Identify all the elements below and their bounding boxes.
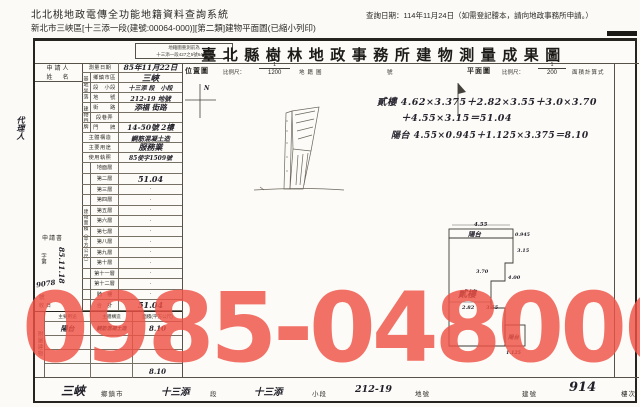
info-row-lot-number: 地 號 212-19 地號 bbox=[82, 93, 182, 103]
dim-4-55: 4.55 bbox=[474, 222, 488, 228]
floor-row: 第九層· bbox=[82, 248, 182, 259]
info-row-structure: 主體構造 鋼筋混凝土造 bbox=[82, 133, 182, 143]
info-row-section: 段 小段 十三添 段 小段 bbox=[82, 83, 182, 93]
scan-artifact-bar bbox=[607, 31, 637, 36]
scanned-survey-page: 北北桃地政電傳全功能地籍資料查詢系統 查詢日期：114年11月24日（如需登記謄… bbox=[0, 0, 640, 407]
floor-label: 第七層 bbox=[91, 227, 119, 237]
calc-line-floor: 貳樓 4.62×3.375＋2.82×3.55＋3.0×3.70 bbox=[377, 94, 597, 108]
floor-row: 第七層· bbox=[82, 227, 182, 238]
floor-label: 第四層 bbox=[91, 195, 119, 205]
application-zidi-label: 字第 bbox=[39, 253, 47, 264]
floor-row: 第二層51.04 bbox=[82, 174, 182, 185]
floor-row: 第十層· bbox=[82, 258, 182, 269]
location-scale-fraction: 1 1200 bbox=[259, 63, 290, 77]
footer-section-label: 段 bbox=[210, 388, 218, 398]
calc-line-floor2: ＋4.55×3.15＝51.04 bbox=[401, 110, 512, 124]
margin-annotation: 代理人 bbox=[16, 116, 27, 140]
dim-3-15: 3.15 bbox=[517, 248, 530, 254]
floor-row: 第三層· bbox=[82, 185, 182, 196]
query-date-note: 查詢日期：114年11月24日（如需登記謄本，請向地政事務所申請。） bbox=[366, 10, 593, 21]
plan-title: 平面圖 bbox=[467, 66, 491, 76]
location-map-title: 位置圖 bbox=[185, 66, 209, 76]
cadastre-number-label: 號 bbox=[387, 68, 393, 76]
floor-value bbox=[119, 163, 182, 173]
info-row-door-number: 門 牌 14-50號 2樓 bbox=[82, 123, 182, 133]
floor-value: · bbox=[119, 206, 182, 216]
scale-denominator: 1200 bbox=[259, 68, 290, 77]
info-row-township: 鄉鎮市區 三峽 bbox=[82, 73, 182, 83]
dim-0-945: 0.945 bbox=[515, 232, 531, 238]
field-label: 街 路 bbox=[91, 103, 119, 112]
info-row-license: 使用執照 85使字1509號 bbox=[82, 153, 182, 163]
footer-floor-label: 樓次 bbox=[621, 388, 636, 398]
application-book-label: 申請書 bbox=[42, 233, 63, 242]
footer-subsection-value: 十三添 bbox=[254, 384, 283, 398]
floor-label: 第六層 bbox=[91, 216, 119, 226]
calc-line-balcony: 陽台 4.55×0.945＋1.125×3.375＝8.10 bbox=[391, 128, 589, 141]
floor-value: · bbox=[119, 227, 182, 237]
field-label: 地 號 bbox=[91, 93, 119, 102]
field-label: 使用執照 bbox=[82, 153, 119, 162]
floor-value: · bbox=[119, 185, 182, 195]
floor-row: 地面層 bbox=[82, 163, 182, 174]
info-row-usage: 主要用途 服務業 bbox=[82, 143, 182, 153]
plan-scale-fraction: 1 200 bbox=[538, 63, 566, 77]
floor-value: · bbox=[119, 258, 182, 268]
scale-denominator: 200 bbox=[538, 68, 566, 77]
applicant-label-line2: 姓 名 bbox=[46, 72, 70, 81]
floor-label: 第五層 bbox=[91, 206, 119, 216]
location-scale-label: 比例尺： bbox=[223, 68, 245, 76]
applicant-label: 申請人 姓 名 bbox=[35, 63, 82, 81]
field-label: 段 小段 bbox=[91, 83, 119, 92]
floor-label: 第十層 bbox=[91, 258, 119, 268]
field-label: 門 牌 bbox=[91, 123, 119, 132]
floor-value: · bbox=[119, 248, 182, 258]
applicant-label-line1: 申請人 bbox=[46, 63, 70, 72]
footer-lot-label: 地號 bbox=[415, 388, 430, 398]
floor-label: 第九層 bbox=[91, 248, 119, 258]
field-value: 14-50號 2樓 bbox=[119, 123, 182, 132]
north-cross-icon: N bbox=[183, 81, 223, 121]
floor-label: 第八層 bbox=[91, 237, 119, 247]
field-value: 添福 街路 bbox=[119, 103, 182, 112]
footer-subsection-label: 小段 bbox=[312, 388, 327, 398]
field-value: 十三添 段 小段 bbox=[119, 83, 182, 92]
area-calculation-label: 面積計算式 bbox=[572, 68, 605, 76]
info-row-street: 街 路 添福 街路 bbox=[82, 103, 182, 113]
footer-section-value: 十三添 bbox=[161, 384, 190, 398]
north-letter: N bbox=[203, 85, 210, 92]
footer-lot-value: 212-19 bbox=[355, 384, 392, 395]
applicant-cell-divider bbox=[35, 81, 82, 82]
field-value: 服務業 bbox=[119, 143, 182, 152]
document-subtitle: 新北市三峽區[十三添一段(建號:00064-000)][第二類]建物平面圖(已縮… bbox=[31, 22, 316, 34]
info-row-survey-date: 測量日期 85年11月22日 bbox=[82, 63, 182, 73]
floor-value: · bbox=[119, 195, 182, 205]
footer-building-number-label: 建號 bbox=[522, 388, 537, 398]
floor-row: 第五層· bbox=[82, 206, 182, 217]
floor-label: 第二層 bbox=[91, 174, 119, 184]
field-value bbox=[119, 113, 182, 122]
field-label: 段巷弄 bbox=[91, 113, 119, 122]
floor-label: 地面層 bbox=[91, 163, 119, 173]
footer-township-value: 三峽 bbox=[61, 382, 85, 399]
watermark-number: 0985-048006 bbox=[22, 280, 640, 376]
field-value: 212-19 地號 bbox=[119, 93, 182, 102]
field-label: 主要用途 bbox=[82, 143, 119, 152]
floor-row: 第八層· bbox=[82, 237, 182, 248]
floor-row: 第六層· bbox=[82, 216, 182, 227]
floor-value: · bbox=[119, 216, 182, 226]
cadastre-map-label: 地籍圖 bbox=[299, 68, 325, 76]
field-label: 測量日期 bbox=[82, 63, 119, 72]
footer-township-label: 鄉鎮市 bbox=[101, 388, 124, 398]
field-value: 三峽 bbox=[119, 73, 182, 82]
balcony-label: 陽台 bbox=[468, 231, 482, 239]
field-value: 85使字1509號 bbox=[119, 153, 182, 162]
field-label: 鄉鎮市區 bbox=[91, 73, 119, 82]
field-label: 主體構造 bbox=[82, 133, 119, 142]
field-value: 鋼筋混凝土造 bbox=[119, 133, 182, 142]
floor-label: 第三層 bbox=[91, 185, 119, 195]
system-title: 北北桃地政電傳全功能地籍資料查詢系統 bbox=[31, 6, 229, 21]
floor-value: · bbox=[119, 237, 182, 247]
floor-row: 第四層· bbox=[82, 195, 182, 206]
floor-value: 51.04 bbox=[119, 174, 182, 184]
plan-scale-label: 比例尺： bbox=[502, 68, 524, 76]
location-map-sketch bbox=[240, 101, 370, 196]
